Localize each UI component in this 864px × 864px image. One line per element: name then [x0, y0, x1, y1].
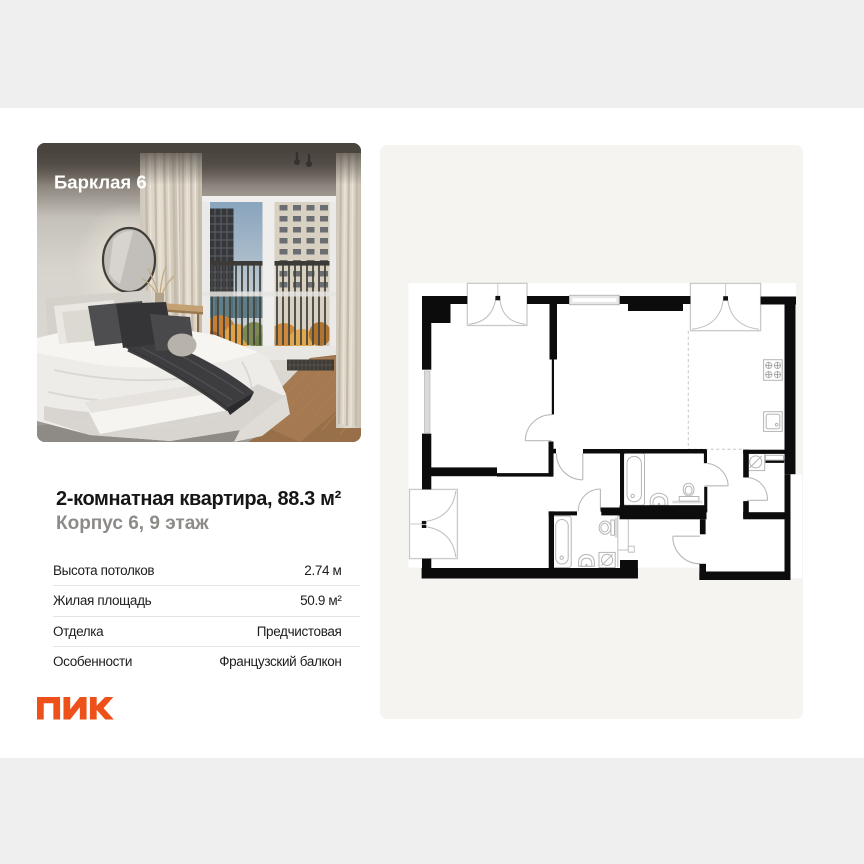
- svg-text:Барклая 6: Барклая 6: [54, 172, 147, 193]
